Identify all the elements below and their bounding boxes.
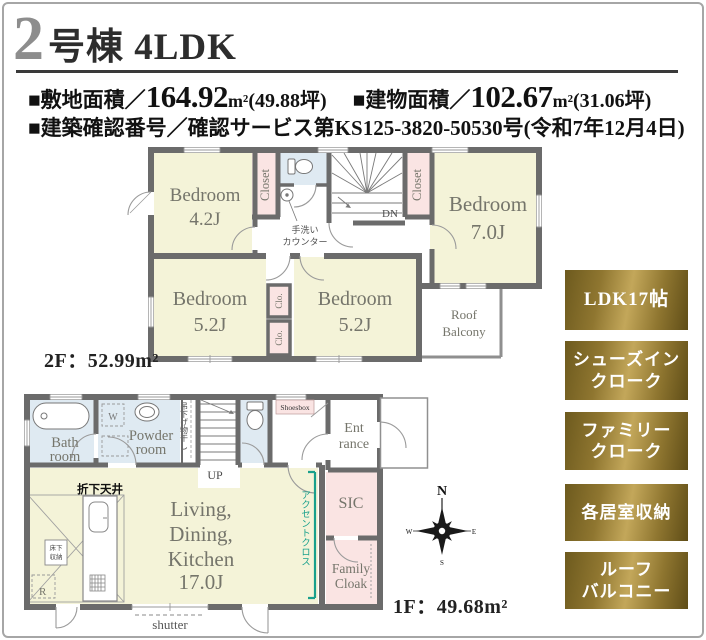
ldk-label-2: Dining, — [169, 522, 233, 546]
page-title: 2 号棟 4LDK — [13, 8, 237, 70]
bedroom-52b-label: Bedroom — [318, 288, 393, 310]
badge-shoes-in-cloak: シューズインクローク — [565, 341, 688, 400]
badge-family-cloak-line1: ファミリー — [582, 420, 672, 441]
badge-ldk17-label: LDK17帖 — [584, 288, 669, 312]
bedroom-52a-label: Bedroom — [173, 288, 248, 310]
bath-label-2: room — [50, 449, 81, 465]
bedroom-52a-size: 5.2J — [194, 314, 227, 336]
shoesbox: Shoesbox — [276, 400, 314, 414]
bedroom-42-label: Bedroom — [170, 185, 241, 206]
floorplan-2f: Bedroom 4.2J Closet Closet Bedroom 7.0J … — [127, 147, 548, 365]
closet-right-label: Closet — [410, 169, 424, 201]
unit-number: 2 — [13, 8, 44, 70]
refrigerator-label: R — [39, 586, 47, 598]
badge-roof-balcony-line2: バルコニー — [582, 581, 672, 602]
hand-wash-label-2: カウンター — [282, 237, 327, 247]
room-bedroom-7_0 — [430, 153, 540, 283]
entrance-label-1: Ent — [344, 421, 364, 436]
clo-upper-label: Clo. — [274, 293, 284, 308]
bedroom-52b-size: 5.2J — [339, 314, 372, 336]
compass-e-label: E — [472, 528, 476, 536]
shutter-marks: shutter — [135, 615, 205, 632]
title-underline — [16, 70, 678, 73]
washer-label: W — [108, 412, 118, 423]
ldk-label-3: Kitchen — [168, 547, 235, 571]
roof-balcony-label-1: Roof — [451, 307, 478, 322]
badge-roof-balcony: ルーフバルコニー — [565, 552, 688, 609]
badge-family-cloak: ファミリークローク — [565, 412, 688, 470]
floorplan-sheet: 2 号棟 4LDK ■敷地面積／ 164.92 m² (49.88坪) ■建物面… — [0, 0, 706, 640]
floor-storage-box: 床下 収納 — [45, 540, 67, 565]
badge-shoes-in-cloak-line1: シューズイン — [573, 349, 680, 370]
stairs-2f — [332, 153, 402, 213]
building-confirmation-line: ■建築確認番号／確認サービス第KS125-3820-50530号(令和7年12月… — [28, 112, 685, 142]
building-area-label: ■建物面積／ — [353, 84, 471, 114]
roof-balcony-label-2: Balcony — [442, 324, 486, 339]
badge-shoes-in-cloak-line2: クローク — [591, 371, 663, 392]
kitchen-counter — [83, 496, 117, 601]
stairs-dn-label: DN — [382, 208, 398, 220]
compass-rose: N W E S — [405, 478, 477, 590]
land-area-value: 164.92 — [146, 79, 228, 115]
floor-storage-label-2: 収納 — [50, 552, 63, 561]
ldk-label-4: 17.0J — [179, 570, 224, 594]
kitchen-sink-icon — [89, 502, 108, 532]
floor2-area-label: 2F：52.99m² — [44, 344, 159, 373]
floor-storage-label-1: 床下 — [50, 543, 64, 552]
stairs-1f — [200, 400, 236, 460]
compass-n-label: N — [437, 484, 447, 499]
land-area-label: ■敷地面積／ — [28, 84, 146, 114]
building-area-tsubo: (31.06坪) — [573, 84, 651, 113]
powder-label-2: room — [136, 442, 167, 458]
clo-lower-label: Clo. — [274, 330, 284, 345]
closet-left-label: Closet — [258, 169, 272, 201]
shutter-label: shutter — [152, 617, 188, 632]
floor1-area-label: 1F：49.68m² — [393, 590, 508, 619]
entrance-porch — [381, 398, 428, 468]
toilet-icon-2f — [288, 159, 313, 174]
entrance-label-2: rance — [339, 437, 369, 452]
area-info-line: ■敷地面積／ 164.92 m² (49.88坪) ■建物面積／ 102.67 … — [28, 79, 651, 115]
bedroom-42-size: 4.2J — [189, 209, 220, 230]
hand-wash-label-1: 手洗い — [291, 224, 318, 235]
family-cloak-label-2: Cloak — [335, 576, 367, 591]
dropped-ceiling-label: 折下天井 — [77, 482, 123, 496]
bathtub-icon — [33, 403, 89, 429]
shoesbox-label: Shoesbox — [280, 403, 309, 412]
badge-room-storage: 各居室収納 — [565, 484, 688, 541]
building-area-unit: m² — [553, 91, 573, 112]
badge-room-storage-label: 各居室収納 — [582, 502, 672, 523]
bedroom-70-label: Bedroom — [449, 192, 527, 216]
land-area-unit: m² — [228, 91, 248, 112]
land-area-tsubo: (49.88坪) — [248, 84, 326, 113]
badge-ldk17: LDK17帖 — [565, 270, 688, 330]
stove-icon — [90, 575, 105, 591]
bedroom-70-size: 7.0J — [471, 220, 505, 244]
unit-title: 号棟 4LDK — [48, 16, 237, 70]
building-area-value: 102.67 — [470, 79, 552, 115]
stairs-up-label: UP — [207, 468, 223, 482]
family-cloak-label-1: Family — [332, 561, 371, 576]
toilet-icon-1f — [247, 402, 263, 430]
badge-roof-balcony-line1: ルーフ — [600, 559, 653, 580]
sic-label: SIC — [339, 495, 364, 512]
room-roof-balcony — [424, 289, 502, 357]
laundry-hanger-label: 吊下げ物干し — [180, 402, 189, 450]
ldk-label-1: Living, — [170, 497, 231, 521]
compass-w-label: W — [406, 528, 413, 536]
compass-s-label: S — [440, 559, 444, 567]
accent-cloth-label: アクセントクロス — [299, 490, 311, 566]
badge-family-cloak-line2: クローク — [591, 441, 663, 462]
floorplan-1f: 床下 収納 R 吊下げ物干し — [20, 390, 432, 635]
hand-wash-sink-icon — [281, 189, 297, 221]
